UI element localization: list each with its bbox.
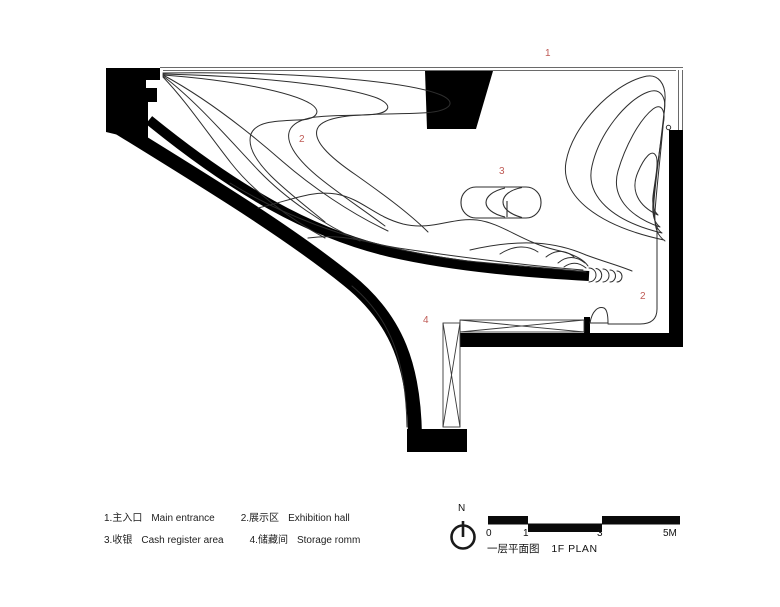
plan-title-zh: 一层平面图 [487,543,540,555]
legend-row-2: 3.收银 Cash register area 4.储藏间 Storage ro… [104,535,360,547]
wall-tail-block [407,429,467,452]
scale-tick-3: 3 [597,528,603,539]
area-marker-exhibition-2: 2 [640,291,646,303]
legend-item-entrance-en: Main entrance [151,513,214,525]
legend-item-cashier-zh: 3.收银 [104,535,132,547]
scale-tick-0: 0 [486,528,492,539]
scale-tick-1: 1 [523,528,529,539]
wall-inner-display-curve [149,120,589,276]
scale-tick-5m: 5M [663,528,677,539]
legend: 1.主入口 Main entrance 2.展示区 Exhibition hal… [104,513,360,557]
wall-outer-curve [116,126,415,436]
legend-item-storage-zh: 4.储藏间 [250,535,288,547]
legend-row-1: 1.主入口 Main entrance 2.展示区 Exhibition hal… [104,513,360,525]
area-marker-exhibition-1: 2 [299,134,305,146]
wall-door-stub [584,317,590,337]
north-arrow-icon [452,521,475,549]
legend-item-exhibition-zh: 2.展示区 [241,513,279,525]
area-marker-storage: 4 [423,315,429,327]
north-label: N [458,503,465,514]
area-marker-entrance: 1 [545,48,551,60]
wall-right [669,130,683,347]
legend-item-cashier-en: Cash register area [141,535,223,547]
wall-bottom [460,333,683,347]
plan-title: 一层平面图 1F PLAN [487,541,598,556]
legend-item-storage-en: Storage romm [297,535,360,547]
legend-item-exhibition-en: Exhibition hall [288,513,350,525]
structural-column [425,71,493,129]
floor-plan-page: 1 2 3 2 4 1.主入口 Main entrance 2.展示区 Exhi… [0,0,780,607]
legend-item-entrance-zh: 1.主入口 [104,513,142,525]
plan-title-en: 1F PLAN [551,543,597,555]
area-marker-cashier: 3 [499,166,505,178]
cash-counter [461,187,541,218]
solid-walls [106,68,683,452]
door-hinge-dot [666,125,670,129]
scale-bar [488,516,680,532]
